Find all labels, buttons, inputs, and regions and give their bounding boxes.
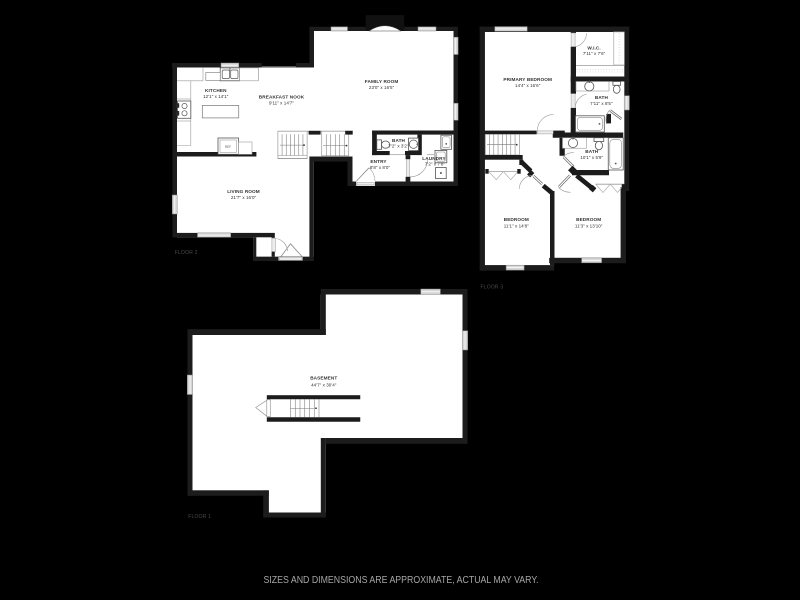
svg-text:SIZES AND DIMENSIONS ARE APPRO: SIZES AND DIMENSIONS ARE APPROXIMATE, AC… [264,575,539,586]
svg-text:BATH: BATH [585,149,599,154]
svg-text:7'11" x 8'5": 7'11" x 8'5" [590,101,613,106]
svg-text:BATH: BATH [392,138,406,143]
svg-text:BEDROOM: BEDROOM [576,217,601,222]
svg-text:BATH: BATH [595,95,609,100]
svg-text:LAUNDRY: LAUNDRY [422,156,446,161]
svg-text:LIVING ROOM: LIVING ROOM [227,189,260,194]
svg-text:7'2" x 7'8": 7'2" x 7'8" [425,162,446,167]
svg-text:W.I.C.: W.I.C. [587,46,600,51]
svg-text:FLOOR 3: FLOOR 3 [481,285,504,291]
svg-text:11'1" x 14'8": 11'1" x 14'8" [504,224,529,229]
svg-text:12'1" x 14'1": 12'1" x 14'1" [203,94,229,99]
svg-text:KITCHEN: KITCHEN [205,88,227,93]
svg-text:BASEMENT: BASEMENT [310,376,337,381]
svg-text:FLOOR 1: FLOOR 1 [188,514,211,520]
svg-text:9'11" x 14'7": 9'11" x 14'7" [269,101,294,106]
svg-text:23'0" x 16'5": 23'0" x 16'5" [369,85,395,90]
svg-text:21'7" x 16'0": 21'7" x 16'0" [231,195,257,200]
svg-text:44'7" x 30'4": 44'7" x 30'4" [311,383,337,388]
svg-text:BREAKFAST NOOK: BREAKFAST NOOK [259,95,305,100]
svg-text:REF: REF [225,145,231,149]
svg-text:FLOOR 2: FLOOR 2 [175,250,198,256]
svg-text:7'11" x 7'6": 7'11" x 7'6" [583,51,606,56]
svg-text:7'2" x 3'2": 7'2" x 3'2" [388,143,409,148]
svg-text:PRIMARY BEDROOM: PRIMARY BEDROOM [503,77,552,82]
svg-text:BEDROOM: BEDROOM [504,217,529,222]
svg-text:FAMILY ROOM: FAMILY ROOM [365,79,399,84]
svg-text:10'1" x 5'9": 10'1" x 5'9" [580,155,603,160]
svg-text:ENTRY: ENTRY [370,159,387,164]
svg-text:8'8" x 8'0": 8'8" x 8'0" [370,165,391,170]
svg-text:14'4" x 16'6": 14'4" x 16'6" [515,83,541,88]
svg-text:11'3" x 13'10": 11'3" x 13'10" [575,224,603,229]
